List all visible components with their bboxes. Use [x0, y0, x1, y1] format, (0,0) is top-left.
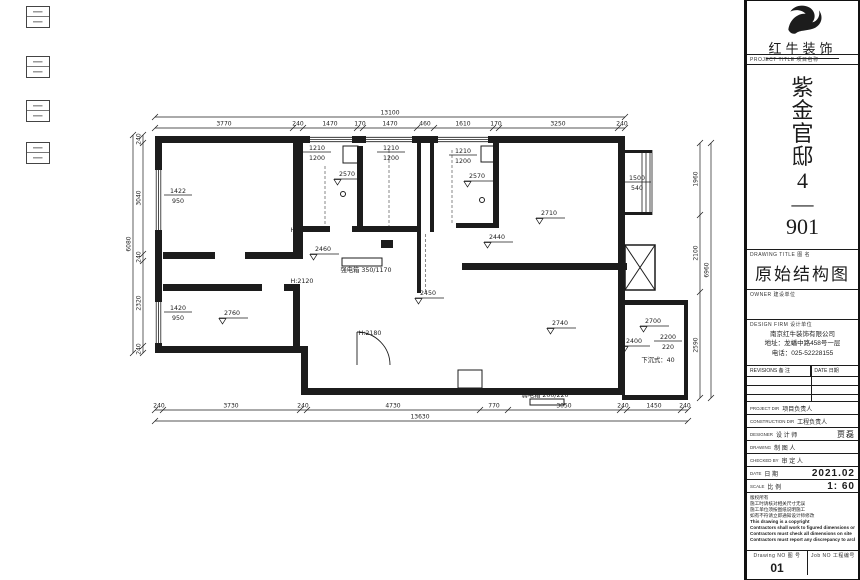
personnel-label-zh: 制 图 人 — [774, 443, 795, 452]
svg-text:3250: 3250 — [550, 121, 565, 128]
personnel-row: PROJECT DIR项目负责人 — [747, 402, 858, 415]
personnel-row: CONSTRUCTION DIR工程负责人 — [747, 415, 858, 428]
project-name: 紫金官邸4—901 — [747, 65, 858, 250]
drawing-title-label: DRAWING TITLE 图 名 — [747, 250, 858, 259]
note-line: Contractors must check all dimensions on… — [750, 531, 855, 537]
project-name-char: 4 — [797, 169, 808, 192]
svg-text:2320: 2320 — [136, 295, 143, 310]
plan-label: 弱电箱 200/220 — [521, 390, 568, 399]
revisions-header: REVISIONS 备 注 DATE 日期 — [747, 366, 858, 377]
svg-text:6080: 6080 — [126, 236, 133, 251]
owner-label: OWNER 建设单位 — [747, 290, 858, 299]
dimension: 13100 — [152, 110, 628, 121]
svg-text:2570: 2570 — [339, 171, 355, 178]
personnel-value: 贾磊 — [837, 429, 855, 440]
svg-text:2700: 2700 — [645, 318, 661, 325]
drawing-no-label: Drawing NO 图 号 — [747, 551, 807, 560]
svg-text:2440: 2440 — [489, 234, 505, 241]
revision-row — [747, 395, 858, 403]
svg-text:3050: 3050 — [556, 403, 571, 410]
dimension: 2403730240473077030502401450240 — [152, 403, 691, 414]
personnel-label-zh: 工程负责人 — [797, 417, 827, 426]
plan-label: 2740 — [547, 320, 576, 334]
dimension: 13630 — [152, 414, 691, 425]
dimension: 6960 — [704, 140, 715, 401]
plan-label: H:2120 — [291, 278, 314, 285]
revisions-table: REVISIONS 备 注 DATE 日期 — [747, 366, 858, 402]
brand-header: 红牛装饰 — [747, 1, 858, 55]
revision-row — [747, 377, 858, 386]
plan-label: 2450 — [415, 290, 444, 304]
svg-text:6960: 6960 — [704, 262, 711, 277]
svg-text:770: 770 — [488, 403, 500, 410]
svg-text:240: 240 — [136, 343, 143, 355]
svg-text:1210: 1210 — [383, 145, 399, 152]
personnel-label-en: SCALE — [750, 484, 764, 489]
svg-text:1210: 1210 — [455, 148, 471, 155]
personnel-label-en: DESIGNER — [750, 432, 773, 437]
project-name-char: 邸 — [791, 145, 813, 168]
bull-logo-icon — [783, 3, 823, 35]
dimension: 24030402402320240 — [136, 132, 147, 356]
plan-label: 2460 — [310, 246, 339, 260]
structure-column — [458, 370, 482, 388]
plan-labels: 1422950142095012101200121012001210120015… — [164, 145, 682, 399]
svg-text:240: 240 — [136, 133, 143, 145]
dimension: 196021002590 — [693, 140, 704, 401]
plan-label: 强电箱 350/1170 — [340, 265, 391, 274]
plan-label: 12101200 — [377, 145, 405, 162]
project-title-label: PROJECT TITLE 项目名称 — [747, 55, 858, 65]
svg-text:强电箱 350/1170: 强电箱 350/1170 — [340, 265, 391, 274]
personnel-row: CHECKED BY审 定 人 — [747, 454, 858, 467]
svg-text:13630: 13630 — [410, 414, 429, 421]
job-no-label: Job NO 工程编号 — [808, 551, 858, 560]
project-name-char: — — [792, 192, 814, 215]
svg-text:H:2120: H:2120 — [291, 278, 314, 285]
strong-electric-box — [342, 258, 382, 266]
svg-text:下沉式：40: 下沉式：40 — [641, 355, 674, 364]
svg-text:2590: 2590 — [693, 337, 700, 352]
personnel-table: PROJECT DIR项目负责人CONSTRUCTION DIR工程负责人DES… — [747, 402, 858, 493]
svg-text:240: 240 — [153, 403, 165, 410]
personnel-label-en: PROJECT DIR — [750, 406, 779, 411]
svg-text:240: 240 — [617, 403, 629, 410]
project-name-char: 901 — [786, 215, 819, 238]
svg-text:1500: 1500 — [629, 175, 645, 182]
personnel-value: 1: 60 — [827, 481, 855, 492]
svg-text:1960: 1960 — [693, 171, 700, 186]
personnel-row: SCALE比 例1: 60 — [747, 480, 858, 492]
note-line: Contractors shall work to figured dimens… — [750, 525, 855, 531]
drawing-title-section: DRAWING TITLE 图 名 原始结构图 — [747, 250, 858, 290]
svg-text:240: 240 — [297, 403, 309, 410]
personnel-row: DATE日 期2021.02 — [747, 467, 858, 480]
svg-text:13100: 13100 — [380, 110, 399, 117]
svg-text:240: 240 — [292, 121, 304, 128]
svg-text:弱电箱 200/220: 弱电箱 200/220 — [521, 390, 568, 399]
svg-text:1450: 1450 — [646, 403, 661, 410]
svg-text:240: 240 — [136, 251, 143, 263]
dimension: 37702401470170147046016101703250240 — [152, 121, 628, 132]
drawing-no-value: 01 — [747, 561, 807, 575]
svg-text:3770: 3770 — [216, 121, 231, 128]
svg-text:2450: 2450 — [420, 290, 436, 297]
svg-text:2100: 2100 — [693, 245, 700, 260]
note-line: Contractors must report any discrepancy … — [750, 537, 855, 543]
plan-label: 1420950 — [164, 305, 192, 322]
svg-text:2400: 2400 — [626, 338, 642, 345]
svg-text:2760: 2760 — [224, 310, 240, 317]
svg-text:1420: 1420 — [170, 305, 186, 312]
drawing-title: 原始结构图 — [747, 260, 858, 285]
svg-text:3730: 3730 — [223, 403, 238, 410]
plan-label: 1422950 — [164, 188, 192, 205]
duct-shaft — [481, 146, 495, 162]
revisions-rows — [747, 377, 858, 403]
svg-text:950: 950 — [172, 315, 184, 322]
duct-shaft — [343, 146, 358, 163]
svg-text:950: 950 — [172, 198, 184, 205]
job-no-cell: Job NO 工程编号 — [808, 551, 858, 575]
plan-label: 1500540 — [623, 175, 651, 192]
revisions-col-label: REVISIONS 备 注 — [747, 366, 811, 376]
svg-text:1200: 1200 — [383, 155, 399, 162]
svg-text:1470: 1470 — [382, 121, 397, 128]
design-firm-label: DESIGN FIRM 设计单位 — [747, 320, 858, 329]
plan-label: 2570 — [464, 173, 493, 187]
svg-text:1210: 1210 — [309, 145, 325, 152]
svg-text:170: 170 — [354, 121, 366, 128]
svg-text:H:2180: H:2180 — [359, 330, 382, 337]
design-firm-section: DESIGN FIRM 设计单位 南京红牛装饰有限公司地址：龙蟠中路458号一层… — [747, 320, 858, 366]
plan-label: 2760 — [219, 310, 248, 324]
plan-label: 12101200 — [303, 145, 331, 162]
title-block: 红牛装饰 PROJECT TITLE 项目名称 紫金官邸4—901 DRAWIN… — [744, 0, 860, 580]
svg-text:1200: 1200 — [455, 158, 471, 165]
floor-plan: 1310037702401470170147046016101703250240… — [0, 0, 745, 580]
revisions-divider — [811, 366, 812, 401]
walls — [155, 136, 688, 400]
svg-text:1610: 1610 — [455, 121, 470, 128]
revision-row — [747, 386, 858, 395]
svg-text:2740: 2740 — [552, 320, 568, 327]
svg-text:220: 220 — [662, 344, 674, 351]
personnel-label-en: DATE — [750, 471, 761, 476]
firm-line: 南京红牛装饰有限公司 — [747, 330, 858, 339]
personnel-label-zh: 日 期 — [764, 469, 778, 478]
svg-text:240: 240 — [679, 403, 691, 410]
date-col-label: DATE 日期 — [811, 366, 858, 376]
plan-label: 2440 — [484, 234, 513, 248]
plan-label: 下沉式：40 — [641, 355, 674, 364]
svg-text:240: 240 — [616, 121, 628, 128]
plan-label: 12101200 — [449, 148, 477, 165]
svg-text:2710: 2710 — [541, 210, 557, 217]
dimension: 6080 — [126, 132, 137, 356]
svg-text:460: 460 — [419, 121, 431, 128]
plan-label: 2710 — [536, 210, 565, 224]
svg-text:1470: 1470 — [322, 121, 337, 128]
personnel-row: DESIGNER设 计 师贾磊 — [747, 428, 858, 441]
project-name-char: 紫 — [791, 76, 813, 99]
plan-label: 2400 — [621, 338, 650, 352]
svg-text:1422: 1422 — [170, 188, 186, 195]
personnel-label-en: DRAWING — [750, 445, 771, 450]
svg-text:H:2120: H:2120 — [291, 227, 314, 234]
notes-block: 版权所有施工时请核对相关尺寸无误施工单位须按图纸说明施工如有不符请立即通知设计师… — [747, 493, 858, 551]
drawing-sheet: 1310037702401470170147046016101703250240… — [0, 0, 860, 580]
plan-label: 2700 — [640, 318, 669, 332]
svg-text:540: 540 — [631, 185, 643, 192]
personnel-label-zh: 比 例 — [767, 482, 781, 491]
firm-line: 电话：025-52228155 — [747, 349, 858, 358]
svg-text:3040: 3040 — [136, 190, 143, 205]
drawing-no-cell: Drawing NO 图 号 01 — [747, 551, 808, 575]
svg-text:170: 170 — [490, 121, 502, 128]
personnel-row: DRAWING制 图 人 — [747, 441, 858, 454]
floor-drain — [341, 192, 346, 197]
personnel-label-zh: 审 定 人 — [782, 456, 803, 465]
design-firm-info: 南京红牛装饰有限公司地址：龙蟠中路458号一层电话：025-52228155 — [747, 330, 858, 358]
svg-text:4730: 4730 — [385, 403, 400, 410]
sheet-number-row: Drawing NO 图 号 01 Job NO 工程编号 — [747, 551, 858, 575]
floor-drain — [480, 198, 485, 203]
plan-label: H:2120 — [291, 227, 314, 234]
firm-line: 地址：龙蟠中路458号一层 — [747, 339, 858, 348]
personnel-label-zh: 设 计 师 — [776, 430, 797, 439]
svg-text:2570: 2570 — [469, 173, 485, 180]
personnel-label-en: CONSTRUCTION DIR — [750, 419, 794, 424]
svg-text:2460: 2460 — [315, 246, 331, 253]
project-name-char: 官 — [791, 122, 813, 145]
plan-label: H:2180 — [359, 330, 382, 337]
svg-text:1200: 1200 — [309, 155, 325, 162]
plan-label: 2200220 — [654, 334, 682, 351]
owner-section: OWNER 建设单位 — [747, 290, 858, 320]
project-name-char: 金 — [791, 99, 813, 122]
personnel-value: 2021.02 — [812, 468, 855, 479]
personnel-label-zh: 项目负责人 — [782, 404, 812, 413]
svg-text:2200: 2200 — [660, 334, 676, 341]
personnel-label-en: CHECKED BY — [750, 458, 779, 463]
